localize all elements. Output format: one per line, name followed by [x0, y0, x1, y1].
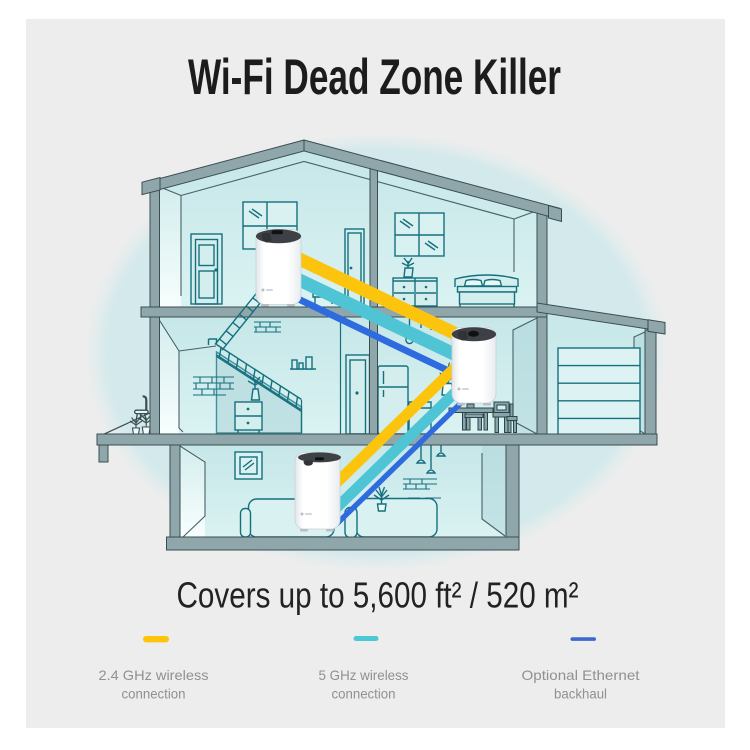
svg-text:Covers up to 5,600 ft² / 520 m: Covers up to 5,600 ft² / 520 m² — [177, 575, 579, 616]
svg-text:connection: connection — [332, 686, 396, 702]
svg-text:2.4 GHz wireless: 2.4 GHz wireless — [99, 667, 209, 683]
svg-text:connection: connection — [122, 686, 186, 702]
svg-text:backhaul: backhaul — [554, 686, 607, 702]
svg-text:5 GHz wireless: 5 GHz wireless — [319, 667, 409, 683]
svg-text:Wi-Fi Dead Zone Killer: Wi-Fi Dead Zone Killer — [188, 49, 561, 105]
svg-text:Optional Ethernet: Optional Ethernet — [522, 667, 640, 683]
